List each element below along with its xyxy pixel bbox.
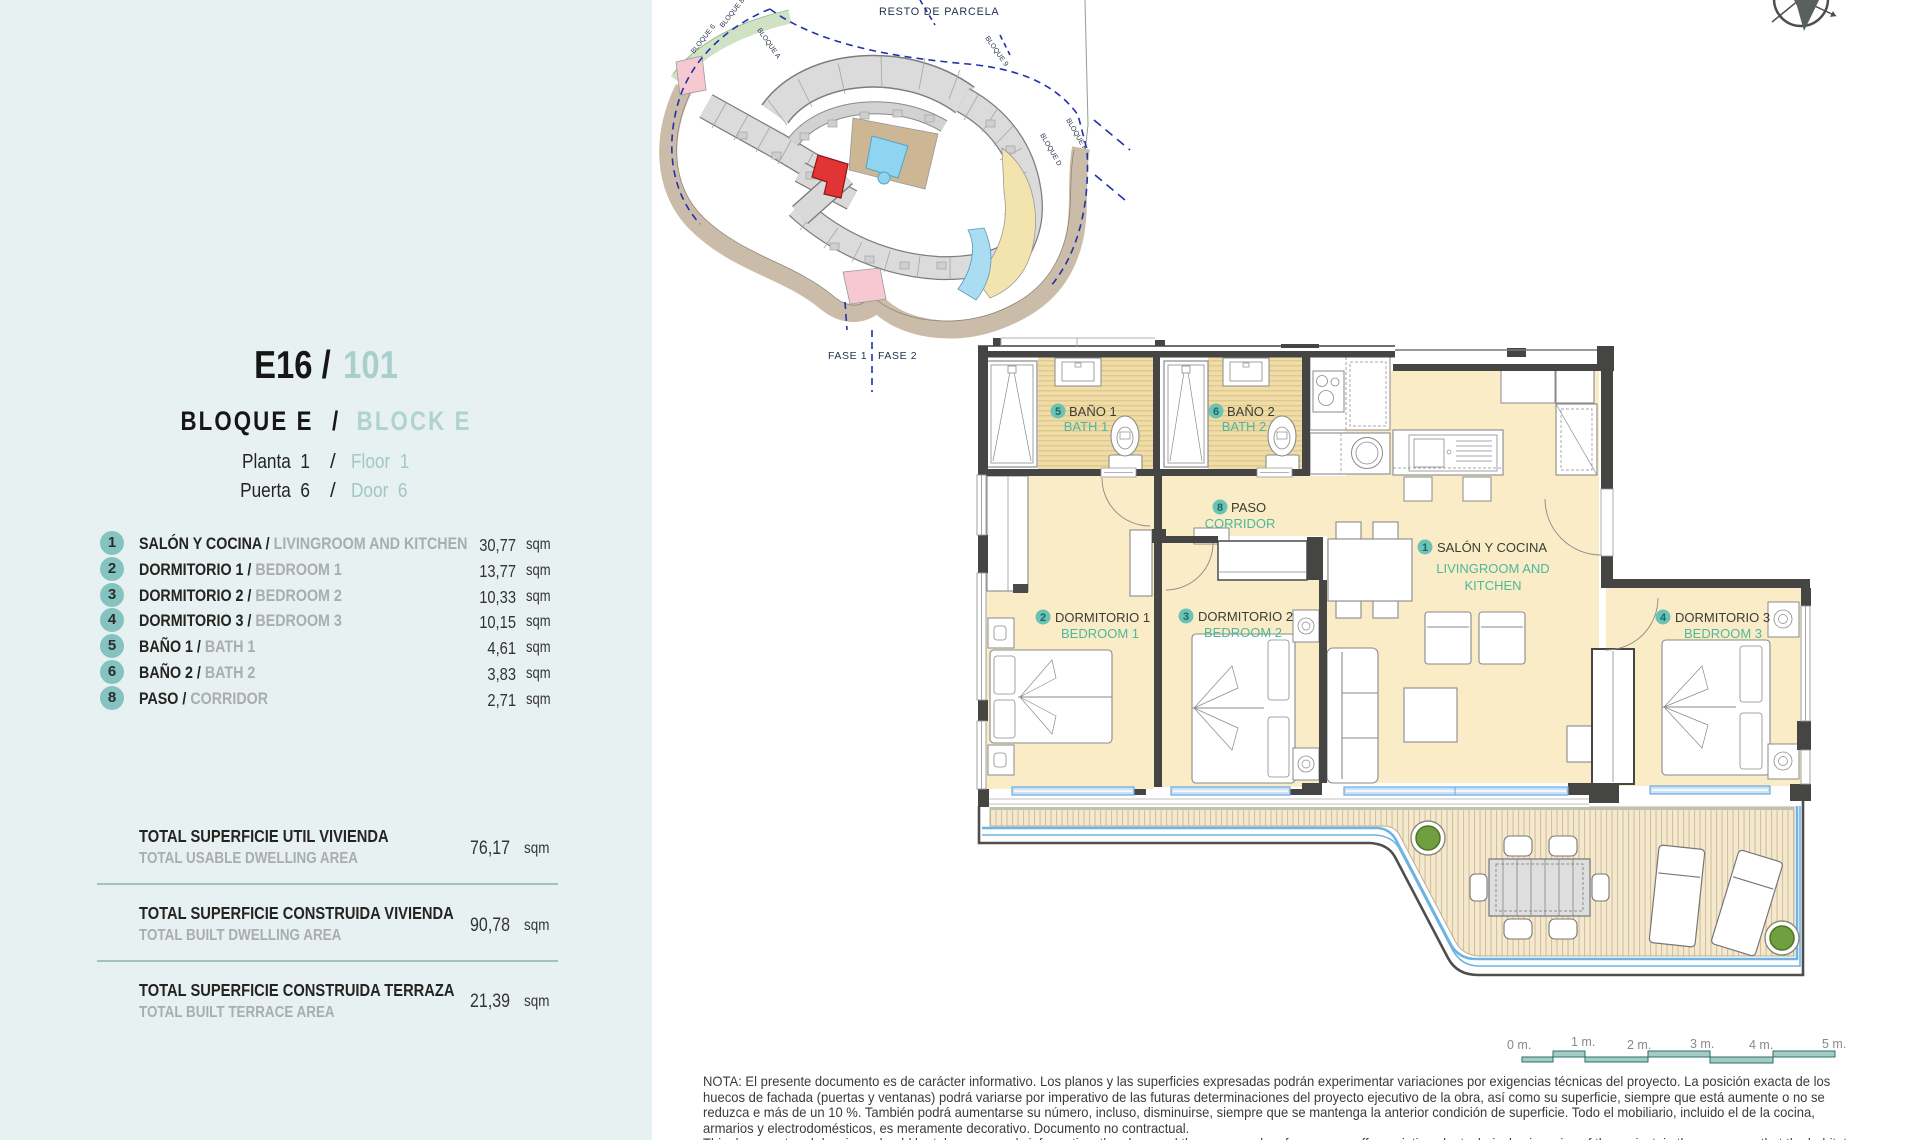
svg-text:1 m.: 1 m. [1571, 1035, 1595, 1049]
svg-text:SALÓN Y COCINA: SALÓN Y COCINA [1437, 540, 1547, 555]
svg-text:BEDROOM 3: BEDROOM 3 [1684, 626, 1762, 641]
svg-text:BLOQUE D: BLOQUE D [1038, 133, 1062, 168]
svg-text:DORMITORIO 2: DORMITORIO 2 [1198, 609, 1293, 624]
svg-text:PASO: PASO [1231, 500, 1266, 515]
svg-text:5 m.: 5 m. [1822, 1037, 1846, 1051]
svg-text:BLOQUE 9: BLOQUE 9 [983, 35, 1009, 68]
svg-text:BLOQUE F: BLOQUE F [1064, 118, 1088, 152]
svg-text:RESTO DE PARCELA: RESTO DE PARCELA [879, 6, 999, 18]
svg-text:2 m.: 2 m. [1627, 1038, 1651, 1052]
svg-text:5: 5 [1055, 406, 1061, 418]
svg-text:4: 4 [1660, 612, 1667, 624]
svg-text:2: 2 [1040, 612, 1046, 624]
svg-text:3: 3 [1183, 611, 1189, 623]
svg-text:FASE 2: FASE 2 [878, 350, 917, 362]
svg-text:DORMITORIO 3: DORMITORIO 3 [1675, 610, 1770, 625]
svg-text:BEDROOM 1: BEDROOM 1 [1061, 626, 1139, 641]
svg-text:BEDROOM 2: BEDROOM 2 [1204, 625, 1282, 640]
svg-text:FASE 1: FASE 1 [828, 350, 867, 362]
svg-text:4 m.: 4 m. [1749, 1038, 1773, 1052]
svg-text:BATH 1: BATH 1 [1064, 419, 1109, 434]
svg-text:BATH 2: BATH 2 [1222, 419, 1267, 434]
svg-text:1: 1 [1422, 542, 1428, 554]
svg-text:BAÑO 1: BAÑO 1 [1069, 404, 1117, 419]
svg-text:LIVINGROOM AND: LIVINGROOM AND [1436, 561, 1549, 576]
svg-text:KITCHEN: KITCHEN [1464, 578, 1521, 593]
svg-text:6: 6 [1213, 406, 1219, 418]
svg-text:8: 8 [1217, 502, 1223, 514]
svg-text:BLOQUE A: BLOQUE A [755, 27, 781, 60]
svg-text:DORMITORIO 1: DORMITORIO 1 [1055, 610, 1150, 625]
svg-text:CORRIDOR: CORRIDOR [1205, 516, 1276, 531]
svg-text:3 m.: 3 m. [1690, 1037, 1714, 1051]
svg-text:0 m.: 0 m. [1507, 1038, 1531, 1052]
svg-text:BAÑO 2: BAÑO 2 [1227, 404, 1275, 419]
